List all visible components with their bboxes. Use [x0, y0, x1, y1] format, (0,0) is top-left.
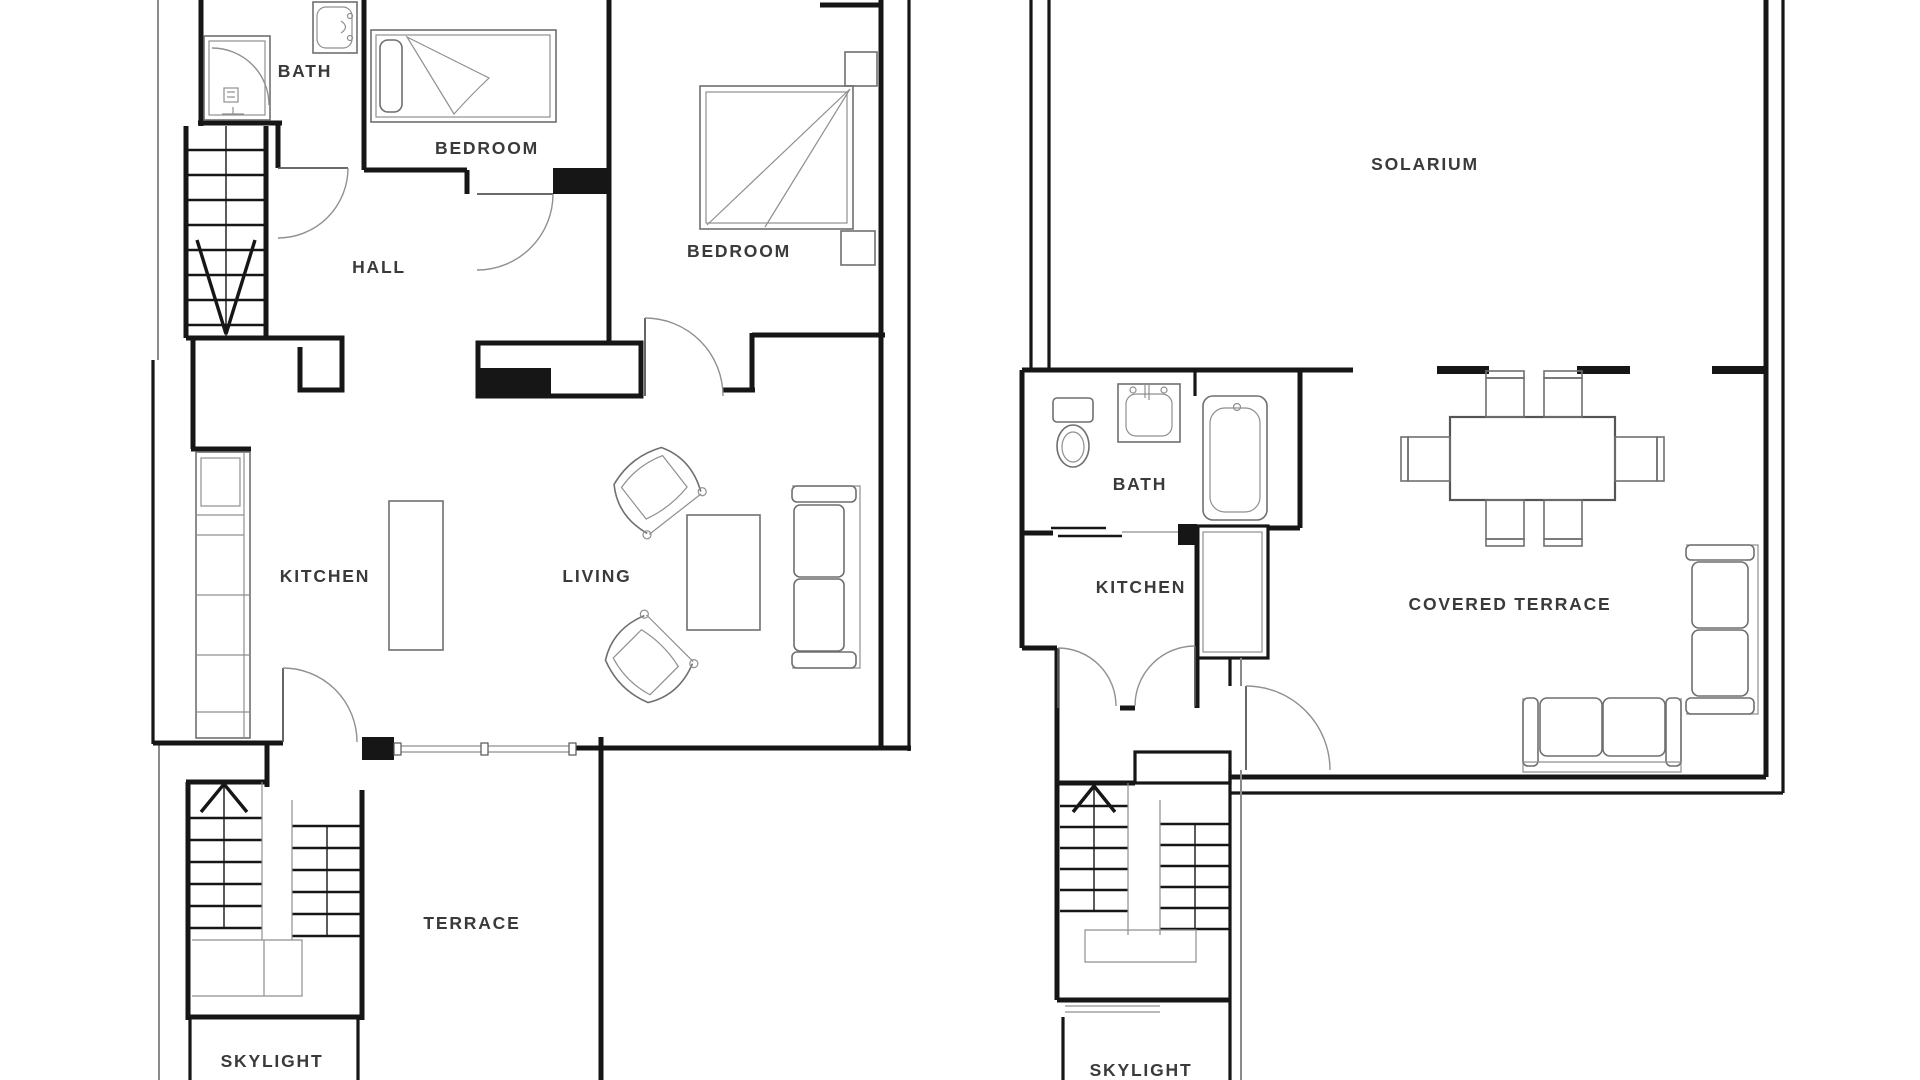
- dining-chair: [1401, 437, 1450, 481]
- door-arc: [645, 318, 723, 396]
- wall-pier: [1178, 524, 1197, 545]
- covered-terrace-area: [1401, 371, 1758, 772]
- room-label-skylight-upper: SKYLIGHT: [1090, 1060, 1193, 1080]
- coffee-table: [687, 515, 760, 630]
- stair-steps: [188, 782, 362, 996]
- bedroom-large: [609, 0, 885, 392]
- sliding-door: [1022, 524, 1197, 545]
- stair-landing-walls: [1135, 752, 1230, 783]
- mullion: [569, 743, 576, 755]
- room-label-hall: HALL: [352, 257, 406, 277]
- hall-walls: [191, 338, 641, 449]
- door-arc: [278, 168, 348, 238]
- room-label-bedroom-small: BEDROOM: [435, 138, 539, 158]
- dining-table: [1450, 417, 1615, 500]
- dining-chair: [1486, 371, 1524, 417]
- room-label-covered-terrace: COVERED TERRACE: [1409, 594, 1612, 614]
- bath-room-upper: [1022, 370, 1300, 648]
- dining-chair: [1486, 500, 1524, 546]
- wall-block-solid: [478, 368, 551, 396]
- sink-basin: [317, 7, 352, 48]
- faucet-dot: [1161, 387, 1167, 393]
- door-arc: [1058, 648, 1116, 706]
- faucet-spout: [341, 21, 346, 33]
- nightstand: [841, 231, 875, 265]
- utility-block: [1197, 526, 1268, 658]
- stair-steps: [186, 126, 266, 338]
- room-label-solarium: SOLARIUM: [1371, 154, 1479, 174]
- room-label-kitchen-upper: KITCHEN: [1096, 577, 1186, 597]
- stairs-upper-plan: [1057, 752, 1230, 1080]
- bed-fold: [407, 37, 489, 114]
- floor-plan-page: BATH BEDROOM HALL BEDROOM KITCHEN LIVING…: [0, 0, 1920, 1080]
- nightstand: [845, 52, 877, 86]
- shower-door-arc: [212, 48, 269, 105]
- utility-block-inner: [1203, 532, 1262, 652]
- bath-room: [198, 0, 364, 170]
- armchair: [594, 608, 700, 714]
- sofa: [792, 486, 860, 668]
- faucet-dot: [1130, 387, 1136, 393]
- kitchen-sink: [201, 458, 240, 506]
- kitchen-area: [196, 452, 443, 738]
- door-arc: [1246, 686, 1330, 770]
- terrace-door-wall: [1230, 658, 1330, 1080]
- armchair: [603, 437, 709, 541]
- window-lines: [1065, 1006, 1160, 1012]
- left-plan-doors: [278, 168, 723, 742]
- sink-vanity: [1118, 384, 1180, 442]
- glass-door: [362, 737, 576, 760]
- kitchen-island: [389, 501, 443, 650]
- dining-chair: [1544, 371, 1582, 417]
- bedroom-small: [364, 30, 609, 194]
- room-label-living: LIVING: [562, 566, 631, 586]
- faucet-tap: [1145, 384, 1149, 400]
- tub-drain: [1234, 404, 1241, 411]
- room-label-skylight: SKYLIGHT: [221, 1051, 324, 1071]
- door-arc: [1135, 646, 1195, 706]
- mullion: [481, 743, 488, 755]
- wall-hook: [266, 338, 342, 390]
- stair-steps: [1060, 783, 1230, 962]
- counter-dividers: [196, 515, 250, 712]
- shower-drain-icon: [224, 88, 238, 102]
- shower-stall-inner: [209, 41, 265, 115]
- pillow: [380, 40, 402, 112]
- room-label-bath-upper: BATH: [1113, 474, 1168, 494]
- bed-fold: [707, 89, 850, 227]
- room-label-bedroom-large: BEDROOM: [687, 241, 791, 261]
- room-label-kitchen: KITCHEN: [280, 566, 370, 586]
- living-area: [594, 437, 860, 714]
- wall-solid: [553, 168, 609, 194]
- dining-chair: [1615, 437, 1664, 481]
- loveseat: [1523, 698, 1681, 772]
- bathtub: [1203, 396, 1267, 520]
- stairs-upper: [186, 126, 266, 338]
- door-arc: [477, 194, 553, 270]
- wall-pier: [362, 737, 394, 760]
- floor-plan-drawing: BATH BEDROOM HALL BEDROOM KITCHEN LIVING…: [0, 0, 1920, 1080]
- single-bed: [371, 30, 556, 122]
- sofa-vertical: [1686, 545, 1758, 714]
- room-label-terrace: TERRACE: [423, 913, 520, 933]
- toilet: [1053, 398, 1093, 467]
- stairs-lower: [186, 743, 362, 1080]
- left-plan: BATH BEDROOM HALL BEDROOM KITCHEN LIVING…: [153, 0, 911, 1080]
- dining-chair: [1544, 500, 1582, 546]
- door-arc: [283, 668, 357, 742]
- right-plan: SOLARIUM BATH KITCHEN COVERED TERRACE SK…: [1022, 0, 1783, 1080]
- room-label-bath: BATH: [278, 61, 333, 81]
- mullion: [394, 743, 401, 755]
